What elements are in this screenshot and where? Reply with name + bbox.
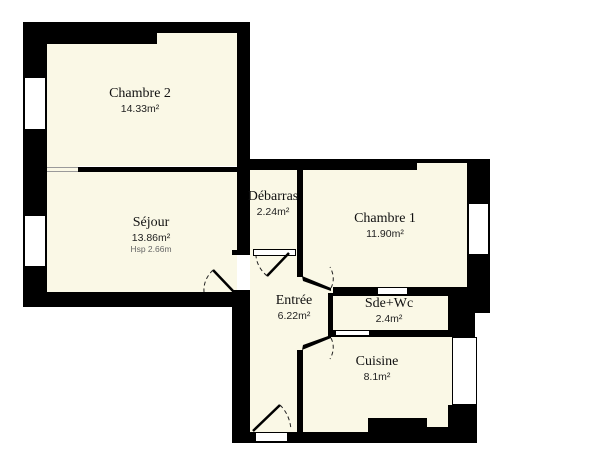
wall-segment: [232, 290, 250, 443]
door-threshold-debarras: [254, 250, 296, 256]
wall-opening-sdewc-bottom: [336, 331, 370, 336]
room-floor-chambre2: [47, 44, 237, 166]
window-chambre2: [25, 78, 46, 130]
wall-segment: [157, 22, 248, 33]
wall-segment: [303, 432, 368, 443]
room-floors: [47, 33, 467, 432]
wall-opening-sdewc-top: [378, 288, 408, 295]
wall-segment: [237, 22, 250, 255]
room-floor-entree: [250, 252, 297, 432]
room-floor-cuisine: [303, 337, 452, 432]
wall-segment: [297, 350, 303, 443]
wall-segment: [368, 418, 427, 443]
wall-opening-chambre2-sejour: [47, 166, 78, 173]
window-sejour: [25, 216, 46, 267]
wall-segment: [248, 163, 417, 170]
wall-segment: [448, 405, 477, 443]
wall-segment: [427, 427, 448, 443]
wall-segment: [328, 293, 333, 330]
room-floor-chambre2-notch: [157, 33, 237, 48]
wall-segment: [448, 295, 475, 331]
room-floor-chambre1-notch: [417, 163, 467, 173]
room-floor-chambre1: [303, 170, 467, 287]
window-cuisine: [453, 338, 477, 405]
room-floor-entree-landing: [297, 277, 333, 296]
wall-segment: [78, 167, 237, 172]
floorplan: Chambre 2 14.33m² Séjour 13.86m² Hsp 2.6…: [0, 0, 600, 453]
room-floor-sdewc: [333, 296, 448, 330]
wall-segment: [23, 292, 248, 307]
door-threshold-entry: [256, 433, 288, 442]
room-floor-debarras: [250, 170, 297, 252]
window-chambre1: [469, 204, 489, 255]
room-floor-sejour: [47, 172, 237, 292]
wall-segment: [232, 250, 250, 255]
wall-segment: [297, 170, 303, 277]
wall-segment: [248, 159, 490, 163]
floorplan-drawing: [0, 0, 600, 453]
